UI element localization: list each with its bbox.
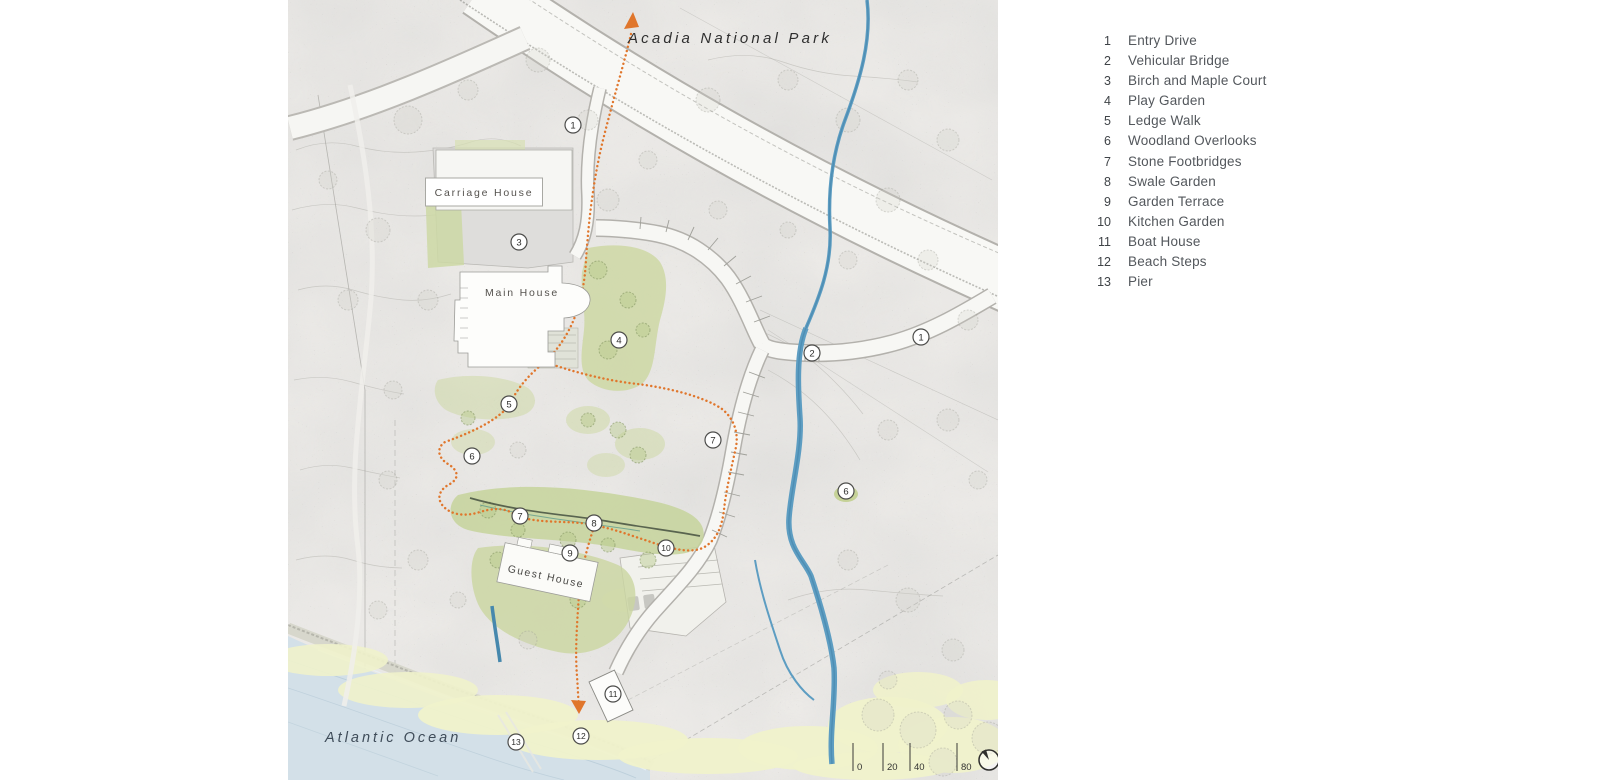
map-marker-woodland-overlooks: 6 — [464, 448, 480, 464]
legend-number: 3 — [1063, 72, 1111, 91]
scale-tick-0: 0 — [857, 762, 862, 773]
scale-tick-40: 40 — [914, 762, 925, 773]
legend: 1Entry Drive 2Vehicular Bridge 3Birch an… — [1063, 31, 1323, 292]
legend-item-vehicular-bridge: 2Vehicular Bridge — [1063, 51, 1323, 71]
legend-item-beach-steps: 12Beach Steps — [1063, 252, 1323, 272]
legend-item-swale-garden: 8Swale Garden — [1063, 172, 1323, 192]
svg-text:12: 12 — [576, 731, 586, 741]
legend-number: 8 — [1063, 173, 1111, 192]
svg-text:2: 2 — [809, 348, 814, 359]
map-marker-stone-footbridges: 7 — [705, 432, 721, 448]
scale-tick-80: 80 — [961, 762, 972, 773]
carriage-house-label: Carriage House — [435, 187, 534, 199]
svg-text:10: 10 — [661, 543, 671, 553]
legend-number: 5 — [1063, 112, 1111, 131]
legend-number: 2 — [1063, 52, 1111, 71]
svg-text:9: 9 — [567, 548, 572, 559]
legend-number: 11 — [1063, 233, 1111, 252]
map-marker-boat-house: 11 — [605, 686, 621, 702]
park-name-label: Acadia National Park — [627, 30, 832, 47]
legend-number: 6 — [1063, 132, 1111, 151]
legend-label: Pier — [1128, 272, 1153, 291]
legend-label: Boat House — [1128, 232, 1201, 251]
main-house-label: Main House — [485, 287, 559, 299]
map-marker-swale-garden: 8 — [586, 515, 602, 531]
legend-item-stone-footbridges: 7Stone Footbridges — [1063, 152, 1323, 172]
svg-text:1: 1 — [918, 332, 923, 343]
svg-text:7: 7 — [710, 435, 715, 446]
svg-text:6: 6 — [469, 451, 474, 462]
svg-text:8: 8 — [591, 518, 596, 529]
map-marker-garden-terrace: 9 — [562, 545, 578, 561]
legend-number: 12 — [1063, 253, 1111, 272]
legend-label: Garden Terrace — [1128, 192, 1224, 211]
legend-number: 9 — [1063, 193, 1111, 212]
svg-text:7: 7 — [517, 511, 522, 522]
map-marker-ledge-walk: 5 — [501, 396, 517, 412]
legend-number: 4 — [1063, 92, 1111, 111]
site-plan-map: Carriage House Main House Guest House 1 … — [288, 0, 998, 780]
svg-text:6: 6 — [843, 486, 848, 497]
legend-number: 13 — [1063, 273, 1111, 292]
legend-label: Stone Footbridges — [1128, 152, 1242, 171]
svg-text:4: 4 — [616, 335, 621, 346]
site-plan-page: Carriage House Main House Guest House 1 … — [0, 0, 1600, 780]
legend-item-woodland-overlooks: 6Woodland Overlooks — [1063, 131, 1323, 151]
legend-label: Woodland Overlooks — [1128, 131, 1257, 150]
legend-label: Swale Garden — [1128, 172, 1216, 191]
map-marker-woodland-overlooks-2: 6 — [838, 483, 854, 499]
legend-label: Vehicular Bridge — [1128, 51, 1230, 70]
legend-number: 1 — [1063, 32, 1111, 51]
svg-text:3: 3 — [516, 237, 521, 248]
legend-label: Beach Steps — [1128, 252, 1207, 271]
map-marker-birch-maple-court: 3 — [511, 234, 527, 250]
svg-text:5: 5 — [506, 399, 511, 410]
north-arrow-icon — [979, 750, 998, 771]
legend-item-entry-drive: 1Entry Drive — [1063, 31, 1323, 51]
legend-item-garden-terrace: 9Garden Terrace — [1063, 192, 1323, 212]
map-marker-beach-steps: 12 — [573, 728, 589, 744]
svg-text:1: 1 — [570, 120, 575, 131]
legend-label: Ledge Walk — [1128, 111, 1201, 130]
legend-number: 7 — [1063, 153, 1111, 172]
ocean-name-label: Atlantic Ocean — [324, 730, 461, 746]
legend-item-boat-house: 11Boat House — [1063, 232, 1323, 252]
map-marker-pier: 13 — [508, 734, 524, 750]
legend-label: Entry Drive — [1128, 31, 1197, 50]
legend-item-pier: 13Pier — [1063, 272, 1323, 292]
map-marker-kitchen-garden: 10 — [658, 540, 674, 556]
legend-label: Play Garden — [1128, 91, 1205, 110]
map-marker-entry-drive-2: 1 — [913, 329, 929, 345]
legend-label: Kitchen Garden — [1128, 212, 1225, 231]
legend-number: 10 — [1063, 213, 1111, 232]
map-marker-entry-drive: 1 — [565, 117, 581, 133]
map-marker-play-garden: 4 — [611, 332, 627, 348]
scale-tick-20: 20 — [887, 762, 898, 773]
map-marker-vehicular-bridge: 2 — [804, 345, 820, 361]
site-plan-drawing: Carriage House Main House Guest House 1 … — [288, 0, 998, 780]
legend-item-play-garden: 4Play Garden — [1063, 91, 1323, 111]
map-marker-stone-footbridges-2: 7 — [512, 508, 528, 524]
legend-item-birch-and-maple-court: 3Birch and Maple Court — [1063, 71, 1323, 91]
svg-text:11: 11 — [609, 689, 618, 699]
legend-label: Birch and Maple Court — [1128, 71, 1267, 90]
legend-item-kitchen-garden: 10Kitchen Garden — [1063, 212, 1323, 232]
legend-item-ledge-walk: 5Ledge Walk — [1063, 111, 1323, 131]
svg-text:13: 13 — [511, 737, 521, 747]
